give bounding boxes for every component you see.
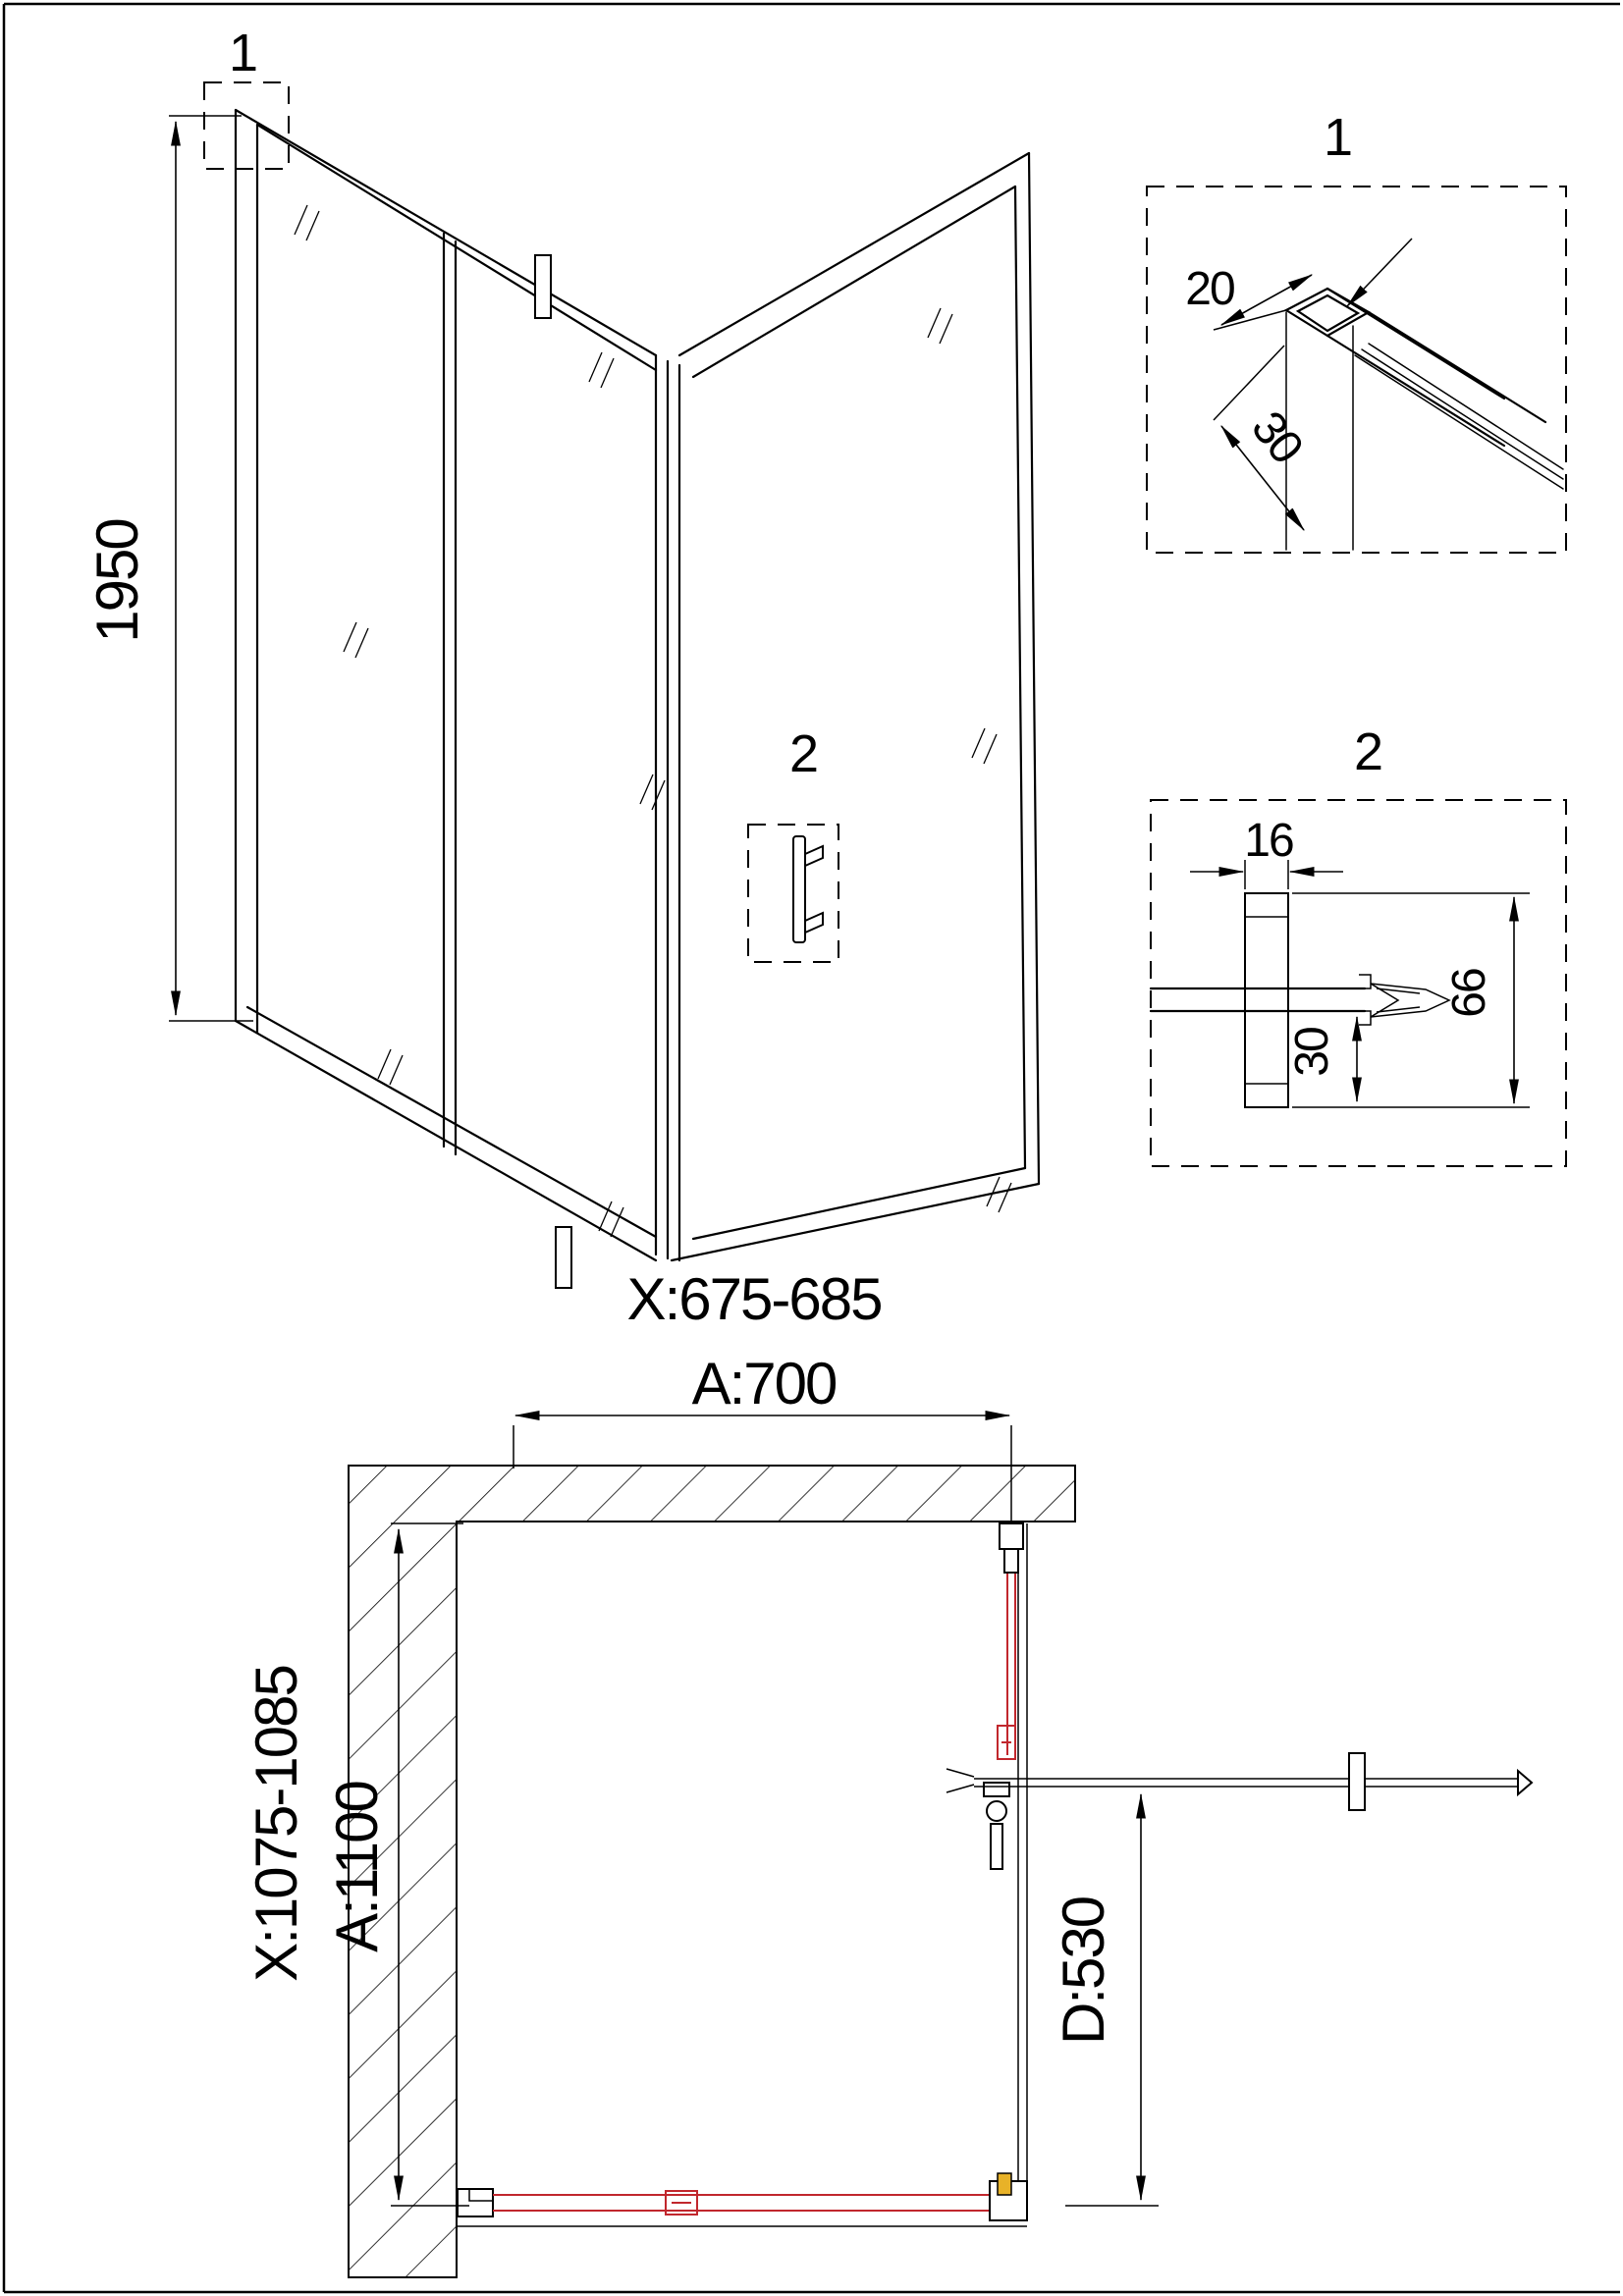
corner-accent: [998, 2173, 1011, 2195]
detail-1-label: 1: [1324, 108, 1351, 167]
front-frame: [236, 110, 679, 1260]
door-handle: [793, 836, 823, 942]
detail-2-dim-16: 16: [1244, 815, 1293, 867]
callout-2-label: 2: [789, 724, 817, 783]
detail-2-dim-30: 30: [1286, 1028, 1338, 1077]
side-frame: [672, 153, 1039, 1260]
detail-1: 1 20 30: [1147, 108, 1566, 553]
shower-enclosure-drawing: 1 2 1950 X:675-685 A:700 1: [0, 0, 1623, 2296]
door-width-dimension: D:530: [1051, 1794, 1141, 2200]
technical-drawing-page: 1 2 1950 X:675-685 A:700 1: [0, 0, 1623, 2296]
height-dim-text: 1950: [84, 519, 150, 643]
door-pivot: [947, 1769, 1009, 1869]
width-dim-text: A:700: [692, 1351, 837, 1416]
width-range-text: X:675-685: [627, 1266, 882, 1332]
depth-range-text: X:1075-1085: [243, 1666, 309, 1982]
bottom-track: [458, 2173, 1027, 2220]
plan-view: X:1075-1085 A:1100 D:530: [243, 1466, 1532, 2277]
detail-1-box: [1147, 187, 1566, 553]
detail-1-profile: [1286, 289, 1563, 550]
side-glass-panel: [998, 1571, 1015, 1759]
detail-2-dim-66: 66: [1443, 969, 1495, 1018]
detail-1-dimensions: 20 30: [1185, 239, 1412, 530]
door-handle-plan: [1349, 1753, 1365, 1810]
depth-dim-text: A:1100: [324, 1782, 390, 1952]
open-door: [974, 1753, 1532, 1810]
iso-view: 1 2 1950 X:675-685 A:700: [84, 24, 1039, 1522]
glass-shine-marks: [295, 205, 1011, 1237]
detail-2-dimensions: 16 66 30: [1190, 815, 1530, 1107]
detail-2: 2 16 66 30: [1151, 722, 1566, 1166]
top-hinge: [535, 255, 551, 318]
height-dimension: 1950: [84, 116, 253, 1021]
door-width-text: D:530: [1051, 1896, 1116, 2045]
detail-2-box: [1151, 800, 1566, 1166]
wall-profile-top-inner: [1004, 1549, 1018, 1573]
callout-1-label: 1: [229, 24, 256, 82]
tray-outline: [457, 1523, 1027, 2226]
seal-profile: [1359, 975, 1449, 1025]
bottom-hinge: [556, 1227, 571, 1288]
callout-1-box: [204, 82, 289, 169]
detail-1-dim-30: 30: [1241, 402, 1312, 473]
detail-1-dim-20: 20: [1185, 263, 1234, 315]
detail-2-label: 2: [1354, 722, 1381, 781]
wall-profile-top: [1000, 1523, 1023, 1549]
wall-hatched: [349, 1466, 1075, 2277]
